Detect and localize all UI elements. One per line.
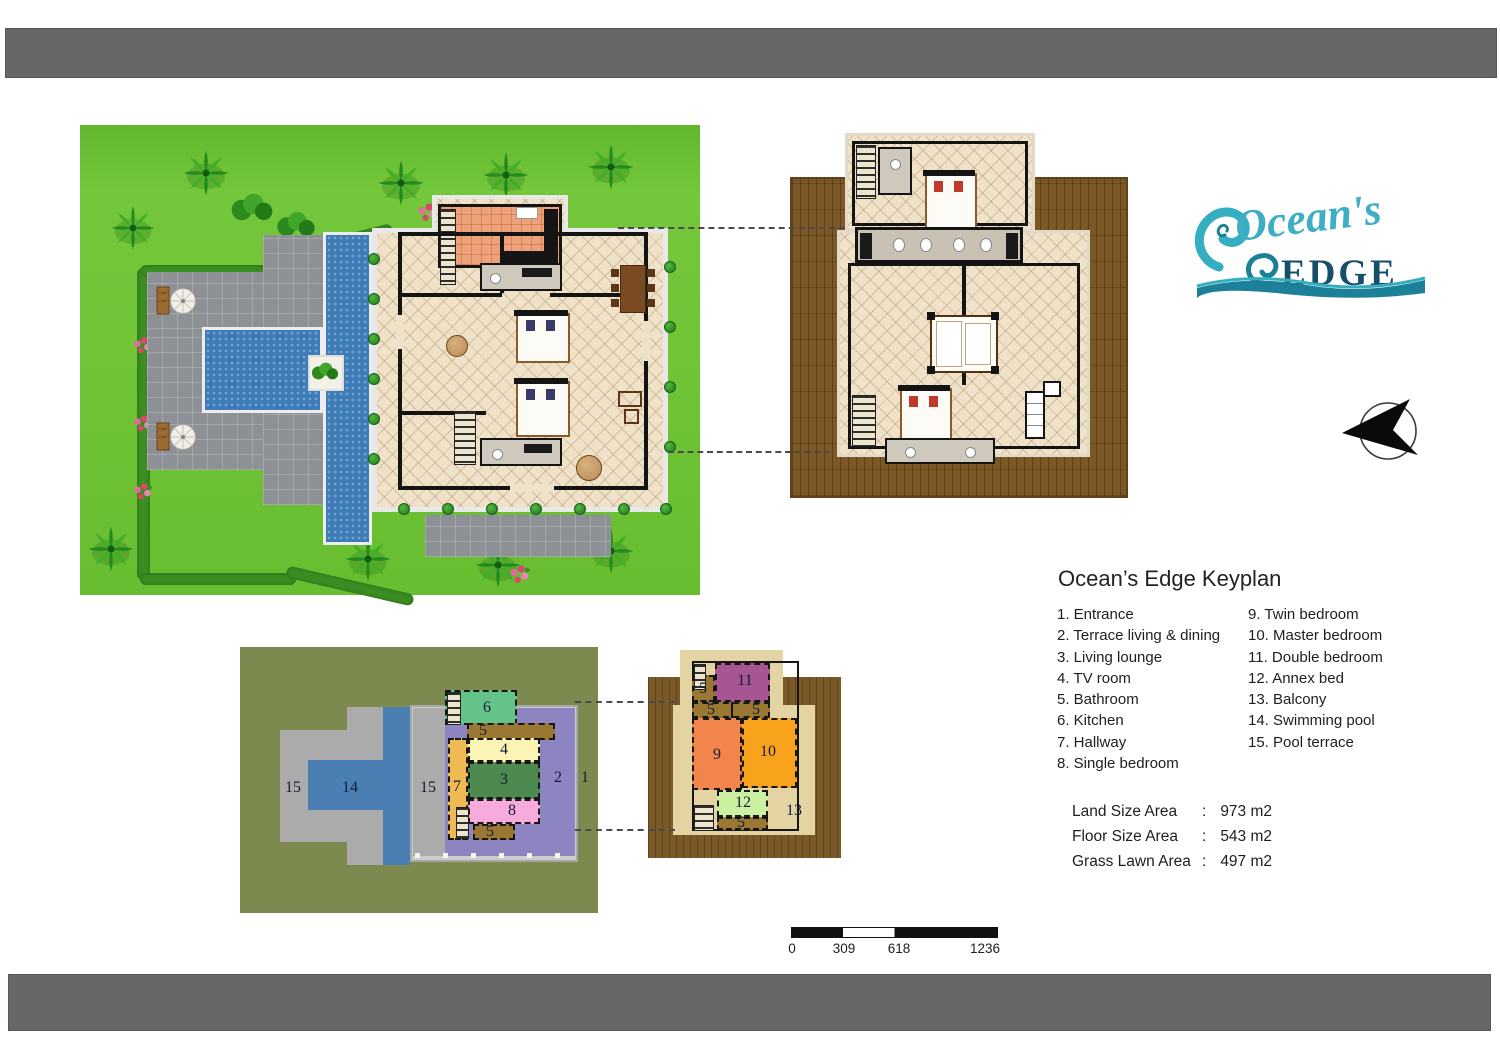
keyplan-upper-colored: 5 11 5 5 9 10 12 5 13	[648, 648, 844, 860]
swimming-pool-arm	[202, 327, 323, 413]
legend-item: 2. Terrace living & dining	[1057, 625, 1252, 646]
area-colon: :	[1202, 824, 1206, 849]
brochure-page: Ocean's EDGE Ocean’s Edge Keyplan 1. Ent…	[0, 0, 1500, 1061]
kp-pool	[383, 707, 410, 865]
bed	[516, 381, 570, 437]
kp-stairs	[447, 692, 461, 725]
wall-opening	[510, 484, 554, 492]
site-plan-ground-floor	[80, 125, 700, 595]
area-label: Land Size Area	[1072, 799, 1202, 824]
legend-item: 10. Master bedroom	[1248, 625, 1428, 646]
legend-item: 12. Annex bed	[1248, 668, 1428, 689]
dining-table	[620, 265, 646, 313]
room-number: 5	[486, 823, 494, 841]
kp-stairs	[456, 807, 469, 839]
legend-item: 1. Entrance	[1057, 604, 1252, 625]
legend-item: 9. Twin bedroom	[1248, 604, 1428, 625]
round-table	[576, 455, 602, 481]
bed	[900, 388, 952, 442]
kp-terrace	[347, 810, 383, 865]
room-number: 15	[420, 779, 436, 797]
room-number: 11	[737, 672, 752, 690]
room-number: 9	[713, 746, 721, 764]
kp-columns	[415, 853, 575, 858]
wall-opening	[642, 321, 650, 361]
wall-opening	[396, 315, 404, 349]
upper-stairs	[852, 395, 876, 447]
twin-bed	[925, 173, 977, 229]
legend-item: 8. Single bedroom	[1057, 753, 1252, 774]
kp-wall	[731, 702, 733, 718]
area-summary: Land Size Area : 973 m2 Floor Size Area …	[1072, 799, 1272, 874]
legend-item: 4. TV room	[1057, 668, 1252, 689]
north-arrow-icon	[1338, 393, 1430, 469]
legend-item: 15. Pool terrace	[1248, 732, 1428, 753]
legend-item: 3. Living lounge	[1057, 647, 1252, 668]
area-colon: :	[1202, 849, 1206, 874]
scale-label: 618	[888, 941, 911, 956]
pool-terrace-paving	[263, 413, 323, 505]
room-number: 5	[752, 701, 760, 719]
flower-cluster-icon	[508, 563, 532, 587]
palm-tree-icon	[108, 203, 158, 253]
legend-column-1: 1. Entrance 2. Terrace living & dining 3…	[1057, 604, 1252, 774]
keyplan-title: Ocean’s Edge Keyplan	[1058, 566, 1281, 592]
pool-terrace-paving	[263, 235, 323, 329]
room-number: 6	[483, 699, 491, 717]
kp-terrace	[347, 707, 383, 760]
room-number: 14	[342, 779, 358, 797]
room-number: 5	[707, 701, 715, 719]
room-number: 3	[500, 771, 508, 789]
pool-terrace-paving	[147, 329, 202, 413]
legend-item: 14. Swimming pool	[1248, 710, 1428, 731]
bathroom	[480, 263, 562, 291]
room-number: 5	[479, 722, 487, 740]
legend-item: 6. Kitchen	[1057, 710, 1252, 731]
room-number: 8	[508, 802, 516, 820]
wardrobe	[1025, 391, 1045, 439]
scale-label: 1236	[970, 941, 1000, 956]
bed	[516, 313, 570, 363]
bathroom	[480, 438, 562, 466]
legend-item: 11. Double bedroom	[1248, 647, 1428, 668]
area-row-floor: Floor Size Area : 543 m2	[1072, 824, 1272, 849]
logo: Ocean's EDGE	[1185, 185, 1430, 310]
scale-bar: 0 309 618 1236	[791, 927, 1006, 963]
flower-cluster-icon	[132, 481, 154, 503]
kp-bathroom	[473, 824, 515, 840]
room-number: 5	[737, 814, 745, 832]
umbrella-icon	[156, 281, 198, 321]
area-label: Floor Size Area	[1072, 824, 1202, 849]
palm-tree-icon	[480, 149, 532, 201]
header-bar	[5, 28, 1497, 78]
legend-item: 5. Bathroom	[1057, 689, 1252, 710]
upper-stairs	[856, 145, 876, 199]
legend-column-2: 9. Twin bedroom 10. Master bedroom 11. D…	[1248, 604, 1428, 753]
palm-tree-icon	[180, 147, 232, 199]
pool-terrace-paving	[425, 515, 611, 557]
room-number: 7	[453, 778, 461, 796]
legend-item: 13. Balcony	[1248, 689, 1428, 710]
area-colon: :	[1202, 799, 1206, 824]
master-bed	[930, 315, 998, 373]
legend-item: 7. Hallway	[1057, 732, 1252, 753]
stove	[516, 207, 538, 219]
connector-line	[618, 227, 845, 229]
pool-planter	[308, 355, 344, 391]
bathroom-band	[855, 227, 1023, 263]
room-number: 1	[581, 769, 589, 787]
connector-line	[575, 701, 675, 703]
room-number: 12	[735, 794, 751, 812]
keyplan-site-colored: 15 14 15 7 6 5 4 3 8 5 2 1	[240, 647, 598, 913]
umbrella-icon	[156, 417, 198, 457]
room-number: 5	[699, 680, 707, 698]
area-value: 543 m2	[1220, 824, 1272, 849]
oceans-edge-logo: Ocean's EDGE	[1185, 185, 1430, 310]
side-table	[1043, 381, 1061, 397]
bush-icon	[230, 191, 274, 223]
room-number: 4	[500, 741, 508, 759]
logo-script-text: Ocean's	[1232, 185, 1384, 251]
stairs	[454, 411, 476, 465]
connector-line	[668, 451, 830, 453]
sitting-area	[624, 409, 639, 424]
room-number: 2	[554, 769, 562, 787]
room-number: 10	[760, 743, 776, 761]
area-label: Grass Lawn Area	[1072, 849, 1202, 874]
connector-line	[575, 829, 675, 831]
upper-floor-plan	[790, 133, 1135, 498]
bathroom	[878, 147, 912, 195]
palm-tree-icon	[85, 523, 137, 575]
sitting-area	[618, 391, 642, 407]
hedge	[140, 573, 296, 585]
bathroom	[885, 438, 995, 464]
area-value: 973 m2	[1220, 799, 1272, 824]
area-value: 497 m2	[1220, 849, 1272, 874]
kp-stairs	[694, 805, 714, 831]
interior-wall	[402, 293, 502, 297]
scale-label: 309	[833, 941, 856, 956]
scale-bar-segments	[791, 927, 998, 938]
room-number: 15	[285, 779, 301, 797]
area-row-grass: Grass Lawn Area : 497 m2	[1072, 849, 1272, 874]
area-row-land: Land Size Area : 973 m2	[1072, 799, 1272, 824]
kp-single-bedroom	[468, 799, 540, 824]
bush-icon	[311, 360, 339, 382]
room-number: 13	[786, 802, 802, 820]
round-table	[446, 335, 468, 357]
scale-label: 0	[788, 941, 796, 956]
footer-bar	[8, 974, 1491, 1031]
palm-tree-icon	[585, 141, 637, 193]
